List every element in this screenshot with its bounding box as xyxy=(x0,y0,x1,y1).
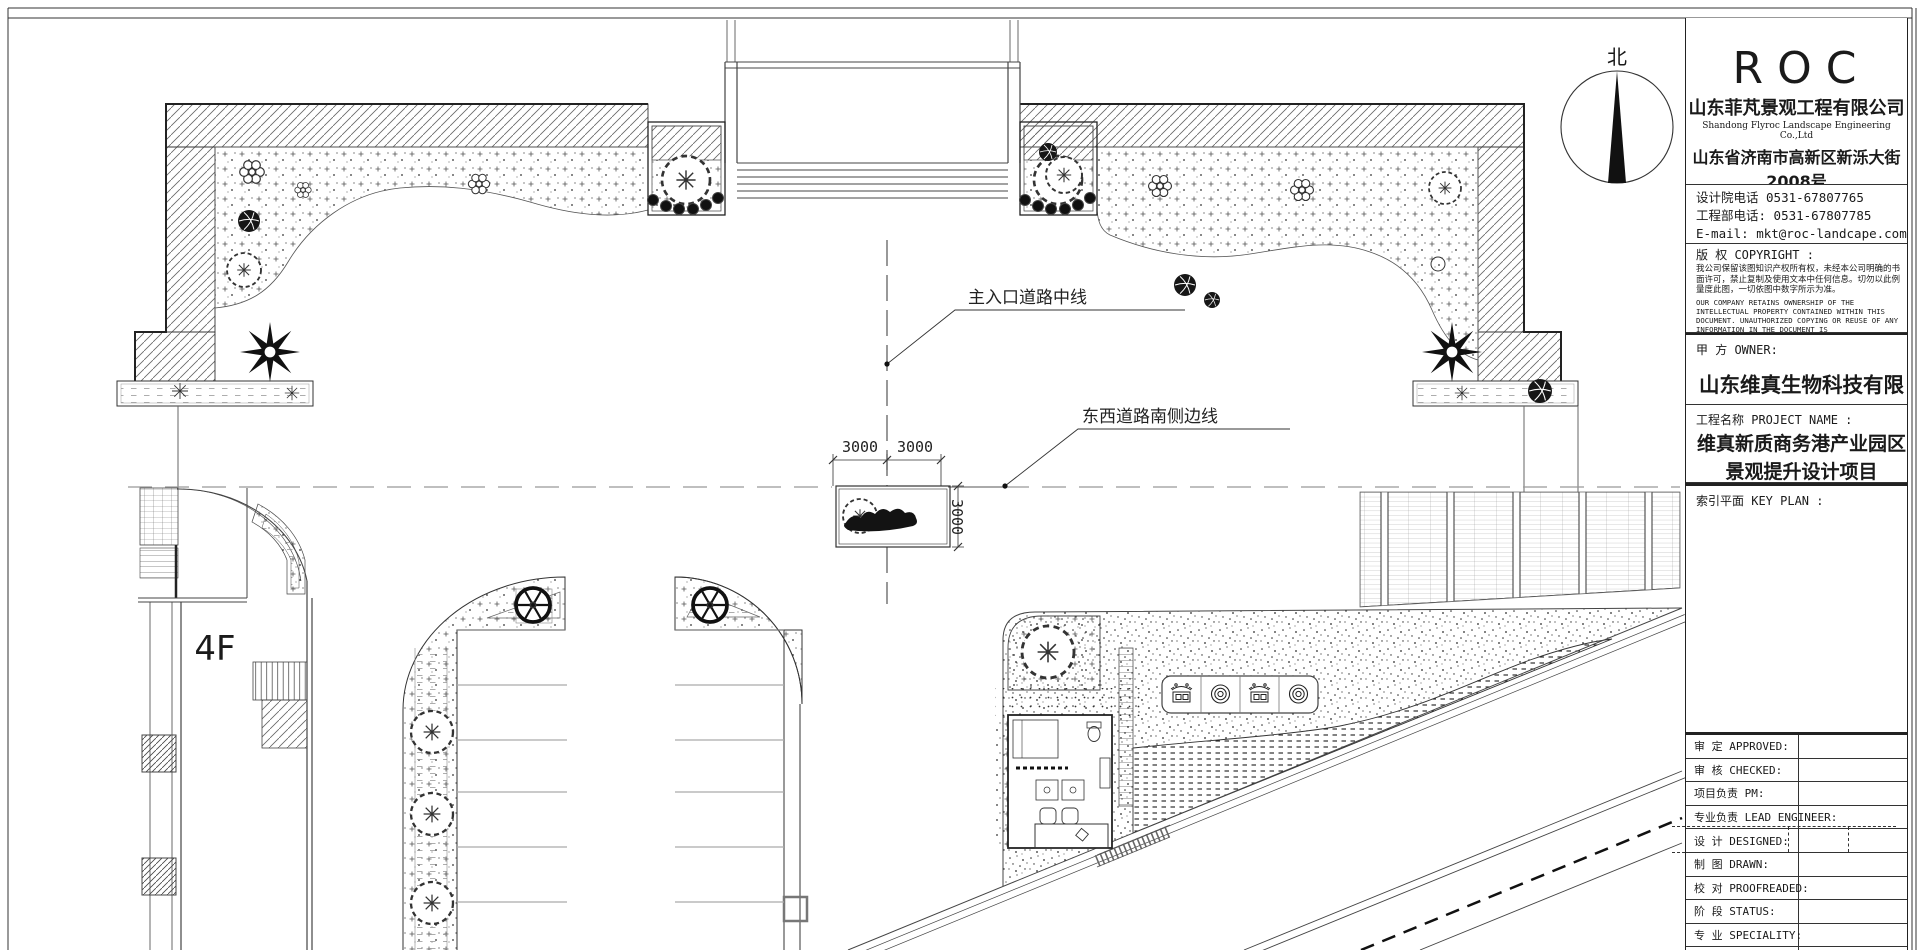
dim-3000-vertical: 3000 xyxy=(948,499,966,535)
west-building-4f: 4F xyxy=(138,488,312,950)
dimensions: 3000 3000 3000 xyxy=(829,438,966,551)
approval-rows: 审 定 APPROVED: 审 核 CHECKED: 项目负责 PM: 专业负责… xyxy=(1686,735,1907,950)
owner-name: 山东维真生物科技有限公司 xyxy=(1696,368,1907,405)
owner-label: 甲 方 OWNER: xyxy=(1696,341,1907,358)
title-block: ROC 山东菲芃景观工程有限公司 Shandong Flyroc Landsca… xyxy=(1685,18,1908,950)
table-row: 审 核 CHECKED: xyxy=(1686,759,1907,783)
table-row: 设 计 DESIGNED: xyxy=(1686,829,1907,853)
table-row: 阶 段 STATUS: xyxy=(1686,900,1907,924)
label-4f: 4F xyxy=(194,629,235,669)
table-row: 专 业 SPECIALITY: xyxy=(1686,924,1907,948)
north-label: 北 xyxy=(1607,45,1627,69)
label-east-west-road-edge: 东西道路南侧边线 xyxy=(1082,407,1218,426)
copyright-text-en: OUR COMPANY RETAINS OWNERSHIP OF THE INT… xyxy=(1696,298,1901,334)
project-name-line1: 维真新质商务港产业园区 xyxy=(1696,433,1907,456)
label-main-entrance-centerline: 主入口道路中线 xyxy=(968,288,1087,307)
project-name-section: 工程名称 PROJECT NAME : 维真新质商务港产业园区 景观提升设计项目 xyxy=(1686,405,1907,483)
table-row: 制 图 DRAWN: xyxy=(1686,853,1907,877)
email: E-mail: mkt@roc-landcape.com xyxy=(1696,225,1907,243)
company-name-en: Shandong Flyroc Landscape Engineering Co… xyxy=(1686,121,1907,141)
table-row: 项目负责 PM: xyxy=(1686,782,1907,806)
copyright-title: 版 权 COPYRIGHT : xyxy=(1696,246,1901,263)
furniture-icon-strip xyxy=(1162,676,1318,713)
title-block-contact-section: 设计院电话 0531-67807765 工程部电话: 0531-67807785… xyxy=(1686,185,1907,244)
copyright-text-cn: 我公司保留该图知识产权所有权，未经本公司明确的书面许可，禁止复制及使用文本中任何… xyxy=(1696,264,1901,296)
entrance-planter-left xyxy=(648,122,726,215)
company-logo: ROC xyxy=(1696,46,1907,92)
landscape-plan-canvas: 3000 3000 3000 主入口道路中线 东西道路南侧边线 4F xyxy=(0,0,1920,950)
north-compass: 北 xyxy=(1561,45,1673,183)
project-name-label: 工程名称 PROJECT NAME : xyxy=(1696,411,1907,428)
company-address-1: 山东省济南市高新区新泺大街2008号 xyxy=(1686,144,1907,185)
company-name-cn: 山东菲芃景观工程有限公司 xyxy=(1686,94,1907,120)
table-row: 专业负责 LEAD ENGINEER: xyxy=(1686,806,1907,830)
engineering-phone: 工程部电话: 0531-67807785 xyxy=(1696,207,1907,225)
key-plan-section: 索引平面 KEY PLAN : xyxy=(1686,483,1907,735)
north-building-band xyxy=(117,104,1578,492)
north-needle xyxy=(1608,71,1626,183)
title-block-copyright-section: 版 权 COPYRIGHT : 我公司保留该图知识产权所有权，未经本公司明确的书… xyxy=(1686,244,1907,333)
parking-lot xyxy=(403,577,807,950)
key-plan-label: 索引平面 KEY PLAN : xyxy=(1696,492,1907,509)
dim-3000-left: 3000 xyxy=(842,438,878,456)
table-row: 校 对 PROOFREADED: xyxy=(1686,877,1907,901)
table-row: 审 定 APPROVED: xyxy=(1686,735,1907,759)
project-name-line2: 景观提升设计项目 xyxy=(1696,461,1907,483)
title-block-logo-section: ROC 山东菲芃景观工程有限公司 Shandong Flyroc Landsca… xyxy=(1686,18,1907,185)
design-phone: 设计院电话 0531-67807765 xyxy=(1696,189,1907,207)
dim-3000-right: 3000 xyxy=(897,438,933,456)
leader-labels: 主入口道路中线 东西道路南侧边线 xyxy=(884,288,1290,489)
entrance-median-island xyxy=(836,486,950,547)
owner-section: 甲 方 OWNER: 山东维真生物科技有限公司 xyxy=(1686,333,1907,405)
